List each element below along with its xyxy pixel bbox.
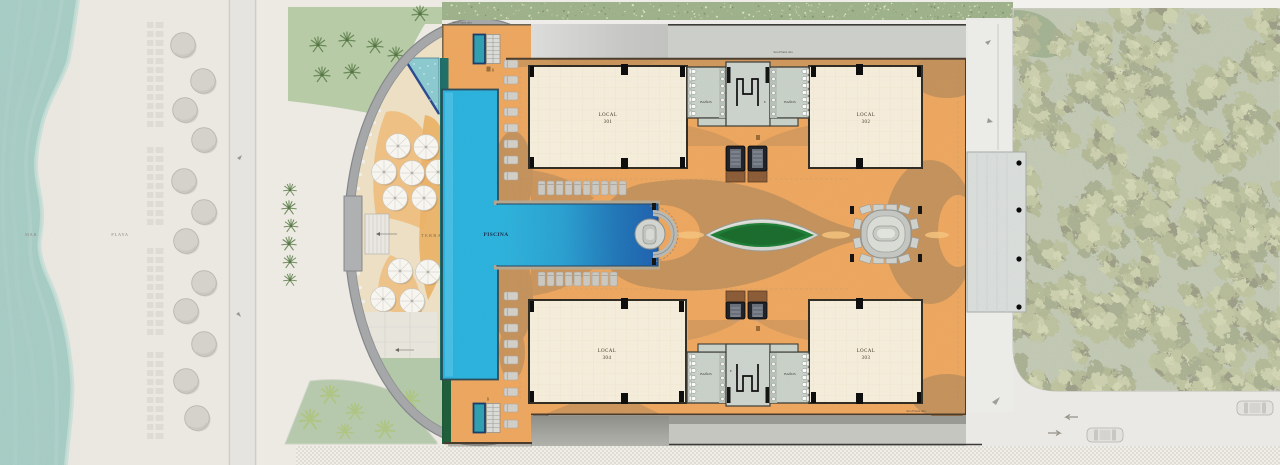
svg-text:3era Planta alta: 3era Planta alta (773, 50, 793, 54)
svg-text:MAR: MAR (25, 232, 38, 237)
svg-text:3era Planta alta: 3era Planta alta (452, 21, 472, 25)
svg-text:PLAYA: PLAYA (111, 232, 128, 237)
svg-text:3era Planta alta: 3era Planta alta (906, 409, 926, 413)
